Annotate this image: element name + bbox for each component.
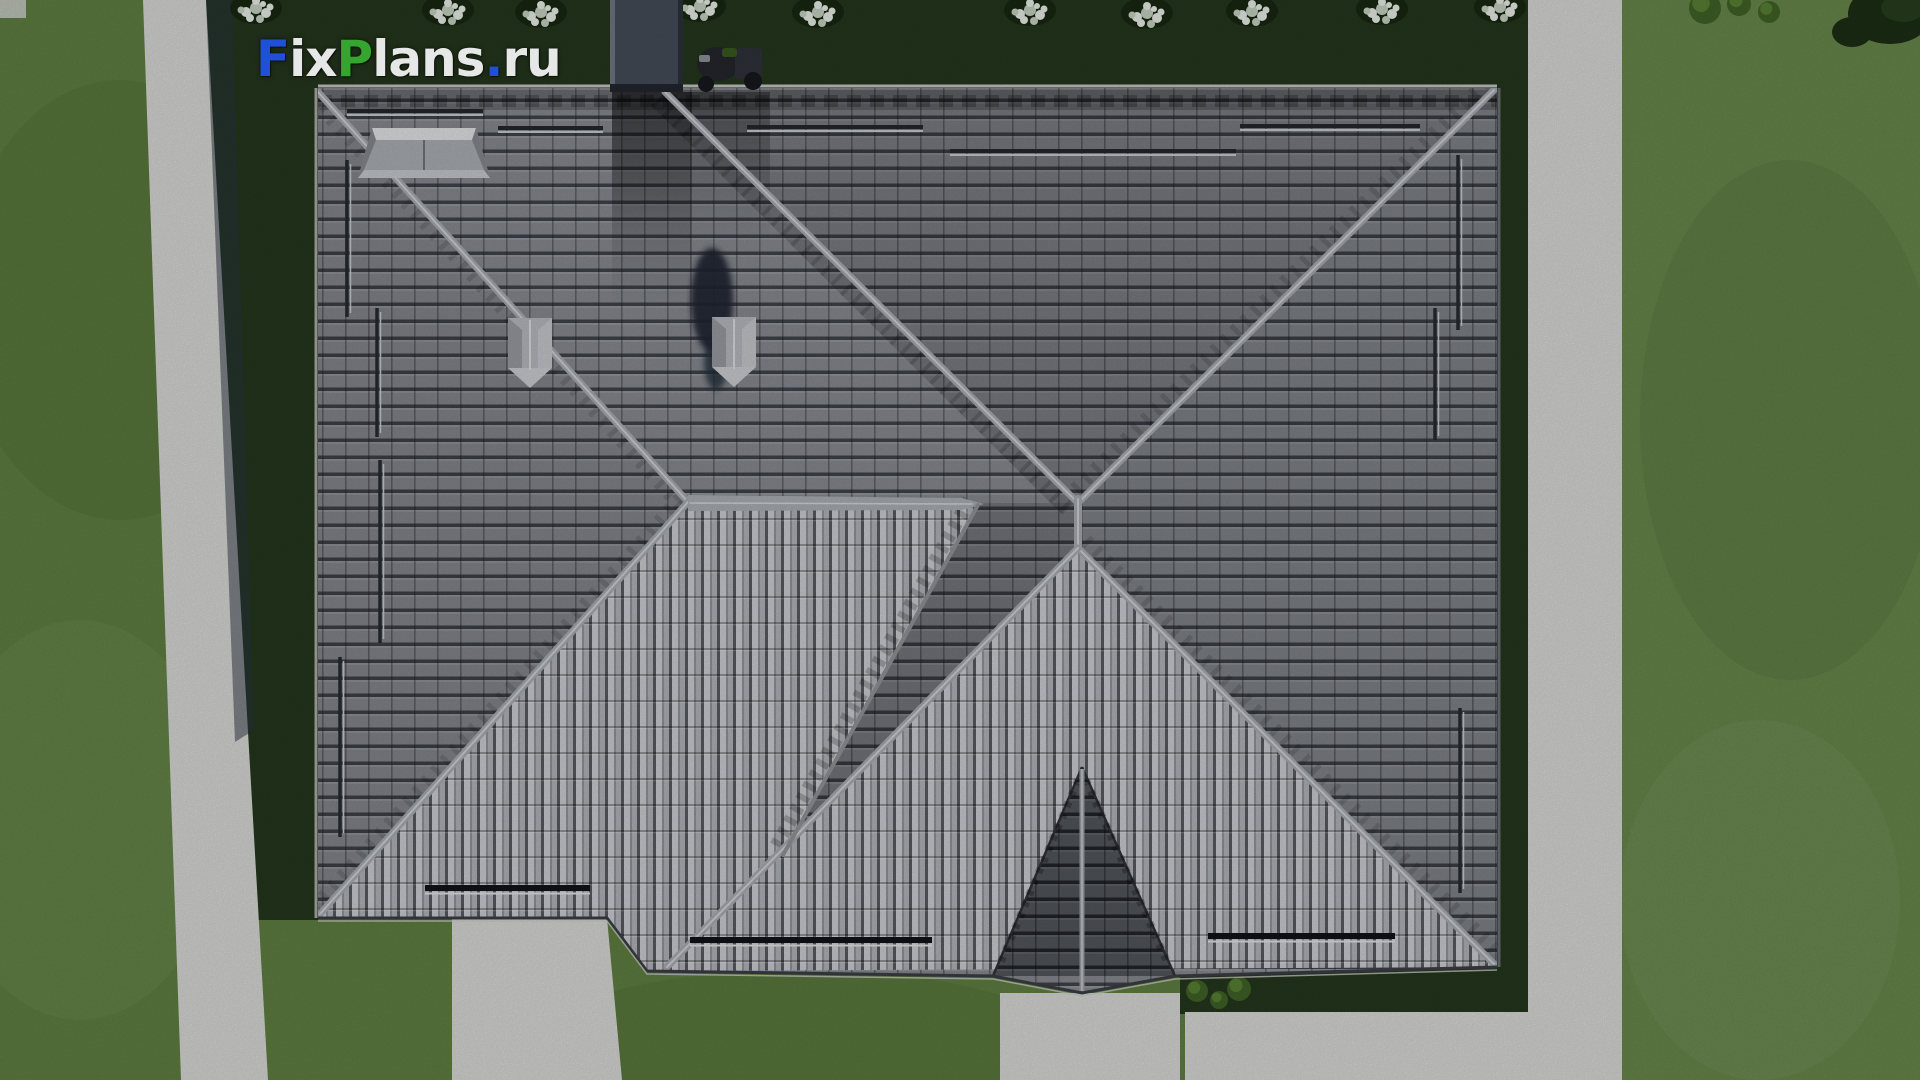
watermark-part: F	[256, 30, 289, 88]
site-plan-graphic	[0, 0, 1920, 1080]
watermark-part: ix	[289, 30, 336, 88]
watermark-logo: FixPlans.ru	[256, 34, 561, 84]
watermark-part: P	[337, 30, 373, 88]
watermark-part: ru	[502, 30, 560, 88]
aerial-site-render: FixPlans.ru	[0, 0, 1920, 1080]
grain-overlay	[0, 0, 1920, 1080]
watermark-part: .	[484, 30, 502, 88]
watermark-part: lans	[372, 30, 484, 88]
